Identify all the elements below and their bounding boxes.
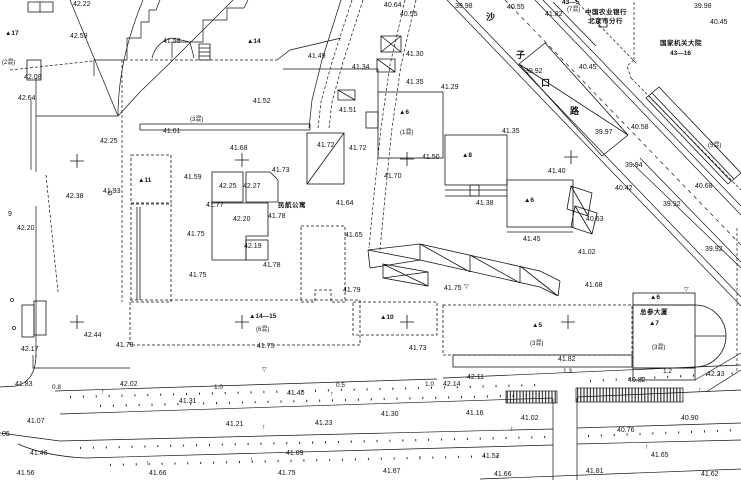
elevation-label: 42.22 <box>73 1 91 8</box>
elevation-label: 41.02 <box>578 249 596 256</box>
elevation-label: 42.02 <box>120 381 138 388</box>
elevation-label: 41.82 <box>558 356 576 363</box>
elevation-label: 41.66 <box>494 471 512 478</box>
elevation-label: 41.72 <box>317 142 335 149</box>
place-name-label: 国家机关大院 <box>660 41 702 48</box>
benchmark-symbol: ▽ <box>464 284 469 290</box>
elevation-label: 42.11 <box>467 374 484 381</box>
building-number-label: ▲17 <box>5 31 19 38</box>
tree-symbol: ↑ <box>645 444 649 451</box>
elevation-label: 42.44 <box>84 332 102 339</box>
tree-symbol: ↑ <box>146 460 150 467</box>
elevation-label: 41.78 <box>268 213 286 220</box>
elevation-label: 41.34 <box>352 64 370 71</box>
elevation-label: 41.65 <box>651 452 669 459</box>
elevation-label: 41.31 <box>179 398 197 405</box>
elevation-label: 41.30 <box>381 411 399 418</box>
building-number-label: 43—16 <box>670 51 691 58</box>
elevation-label: 41.78 <box>263 262 281 269</box>
building-number-label: 43—5 <box>562 0 579 7</box>
building-number-label: ▲10 <box>380 315 394 322</box>
elevation-label: 40.42 <box>615 185 633 192</box>
elevation-label: 42.25 <box>219 183 237 190</box>
elevation-label: 41.59 <box>184 174 202 181</box>
elevation-label: 41.51 <box>339 107 357 114</box>
elevation-label: 41.75 <box>444 285 462 292</box>
elevation-label: 41.16 <box>466 410 484 417</box>
elevation-label: 39.98 <box>455 3 473 10</box>
elevation-label: 40.90 <box>681 415 699 422</box>
elevation-label: 41.45 <box>523 236 541 243</box>
elevation-label: 41.62 <box>701 471 719 478</box>
elevation-label: 41.66 <box>149 470 167 477</box>
elevation-label: 40.68 <box>695 183 713 190</box>
elevation-label: 41.70 <box>384 173 402 180</box>
structure-type-label: (1混) <box>400 130 413 136</box>
elevation-label: 40.55 <box>400 11 418 18</box>
width-dimension-label: 0.8 <box>52 385 61 392</box>
elevation-label: 42.17 <box>21 346 39 353</box>
elevation-label: 41.73 <box>272 167 290 174</box>
building-number-label: ▲6 <box>524 198 534 205</box>
street-name-char: 路 <box>570 107 579 116</box>
elevation-label: 40.45 <box>710 19 728 26</box>
elevation-label: 40.76 <box>617 427 635 434</box>
elevation-label: 40.63 <box>586 216 604 223</box>
elevation-label: 41.35 <box>502 128 520 135</box>
map-linework <box>0 0 741 480</box>
elevation-label: 41.68 <box>230 145 248 152</box>
elevation-label: 39.98 <box>694 3 712 10</box>
tree-symbol: ↑ <box>330 391 334 398</box>
elevation-label: 39.94 <box>625 162 643 169</box>
elevation-label: 41.75 <box>257 343 275 350</box>
elevation-label: 41.64 <box>336 200 354 207</box>
elevation-label: 41.07 <box>27 418 45 425</box>
elevation-label: 41.21 <box>226 421 244 428</box>
building-outlines <box>22 2 741 380</box>
elevation-label: 42.20 <box>17 225 35 232</box>
elevation-label: 42.20 <box>233 216 251 223</box>
building-number-label: ▲6 <box>399 110 409 117</box>
elevation-label: 41.89 <box>286 450 304 457</box>
place-name-label: 总参大厦 <box>640 310 668 317</box>
elevation-label: .05 <box>0 431 10 438</box>
elevation-label: 41.72 <box>349 145 367 152</box>
survey-map: 42.2242.5941.5942.0842.6442.2541.6142.38… <box>0 0 741 480</box>
elevation-label: 41.02 <box>521 415 539 422</box>
elevation-label: 41.30 <box>406 51 424 58</box>
elevation-label: 41.93 <box>103 188 121 195</box>
elevation-label: 41.52 <box>253 98 271 105</box>
elevation-label: 42.38 <box>66 193 84 200</box>
building-number-label: ▲5 <box>532 323 542 330</box>
elevation-label: 40.64 <box>384 2 402 9</box>
elevation-label: 41.23 <box>315 420 333 427</box>
elevation-label: 41.87 <box>383 468 401 475</box>
elevation-label: 40.58 <box>631 124 649 131</box>
width-dimension-label: 1.2 <box>663 369 672 376</box>
elevation-label: 39.92 <box>663 201 681 208</box>
elevation-label: 42.25 <box>100 138 118 145</box>
elevation-label: 41.40 <box>287 390 305 397</box>
elevation-label: 40.82 <box>628 377 646 384</box>
elevation-label: 41.68 <box>585 282 603 289</box>
elevation-label: 41.75 <box>278 470 296 477</box>
street-name-char: 口 <box>541 79 550 88</box>
elevation-label: 39.92 <box>705 246 723 253</box>
elevation-label: 42.14 <box>443 381 461 388</box>
place-name-label: 民航公寓 <box>278 203 306 210</box>
structure-type-label: (2混) <box>2 60 15 66</box>
guardrail-hatch-bars <box>506 388 683 403</box>
width-dimension-label: 1.0 <box>214 385 223 392</box>
elevation-label: 41.35 <box>406 79 424 86</box>
elevation-label: 9 <box>8 211 12 218</box>
building-number-label: ▲7 <box>649 321 659 328</box>
point-symbols <box>11 191 113 330</box>
tree-symbol: ↑ <box>698 387 702 394</box>
elevation-label: 41.78 <box>116 342 134 349</box>
elevation-label: 42.59 <box>70 33 88 40</box>
elevation-label: 41.52 <box>482 453 500 460</box>
elevation-label: 41.75 <box>187 231 205 238</box>
elevation-label: 41.59 <box>163 38 181 45</box>
elevation-label: 42.19 <box>244 243 262 250</box>
structure-type-label: (3混) <box>652 345 665 351</box>
elevation-label: 41.81 <box>586 468 604 475</box>
elevation-label: 41.79 <box>343 287 361 294</box>
elevation-label: 41.50 <box>422 154 440 161</box>
elevation-label: 41.38 <box>476 200 494 207</box>
elevation-label: 40.45 <box>579 64 597 71</box>
building-number-label: ▲8 <box>462 153 472 160</box>
tree-symbol: ↑ <box>510 426 514 433</box>
elevation-label: 42.08 <box>24 74 42 81</box>
elevation-label: 41.56 <box>17 470 35 477</box>
building-number-label: ▲14—15 <box>249 314 276 321</box>
street-name-char: 沙 <box>486 13 495 22</box>
elevation-label: 41.75 <box>189 272 207 279</box>
elevation-label: 41.82 <box>545 11 563 18</box>
elevation-label: 41.73 <box>409 345 427 352</box>
street-name-char: 子 <box>516 51 525 60</box>
tree-symbol: ↑ <box>262 424 266 431</box>
elevation-label: 41.77 <box>206 202 224 209</box>
structure-type-label: (5混) <box>708 143 721 149</box>
elevation-label: 41.49 <box>308 53 326 60</box>
width-dimension-label: 0.5 <box>336 383 345 390</box>
place-name-label: 中国农业银行 <box>585 10 627 17</box>
place-name-label: 北京市分行 <box>588 19 623 26</box>
elevation-label: 41.83 <box>15 381 33 388</box>
benchmark-symbol: ▽ <box>262 367 267 373</box>
elevation-label: 42.64 <box>18 95 36 102</box>
elevation-label: 42.27 <box>243 183 261 190</box>
elevation-label: 41.65 <box>345 232 363 239</box>
benchmark-symbol: ▽ <box>684 287 689 293</box>
building-number-label: ▲11 <box>138 178 151 185</box>
structure-type-label: (3混) <box>190 117 203 123</box>
tree-symbol: ↑ <box>101 389 105 396</box>
building-number-label: ▲6 <box>650 295 660 302</box>
elevation-label: 41.61 <box>163 128 181 135</box>
road-lines <box>0 0 741 480</box>
elevation-label: 41.40 <box>548 168 566 175</box>
tree-symbol: ↑ <box>250 457 254 464</box>
structure-type-label: (7混) <box>567 7 580 13</box>
tree-symbol: ↑ <box>418 455 422 462</box>
width-dimension-label: 1.0 <box>425 382 434 389</box>
structure-type-label: (6混) <box>256 327 269 333</box>
elevation-label: 39.92 <box>525 68 543 75</box>
elevation-label: 41.46 <box>30 450 48 457</box>
width-dimension-label: 1.3 <box>563 369 572 376</box>
elevation-label: 40.55 <box>507 4 525 11</box>
structure-type-label: (3混) <box>530 341 543 347</box>
elevation-label: 42.23 <box>707 371 725 378</box>
elevation-label: 41.29 <box>441 84 459 91</box>
elevation-label: 39.97 <box>595 129 613 136</box>
building-number-label: ▲14 <box>247 39 261 46</box>
